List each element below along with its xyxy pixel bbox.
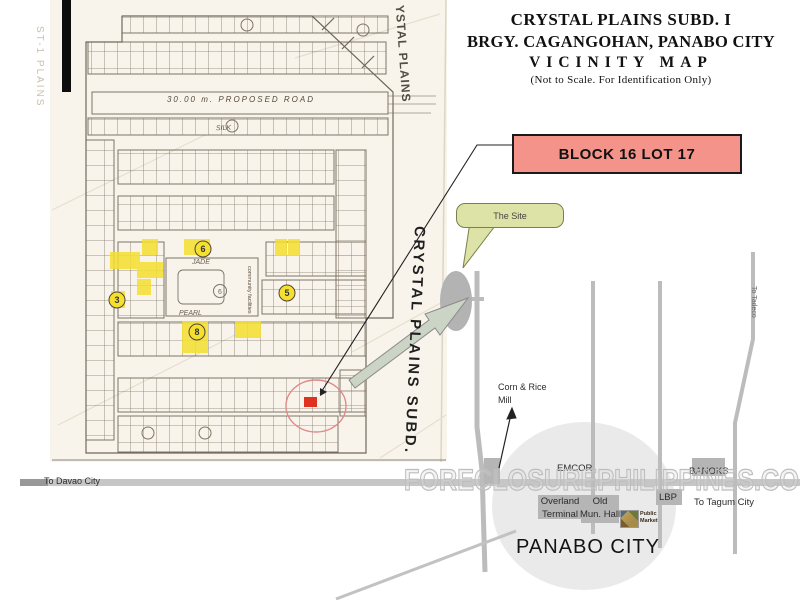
street-name-jade: JADE	[192, 259, 210, 266]
block-lot-callout: BLOCK 16 LOT 17	[512, 134, 742, 174]
street-name-silk: SILK	[216, 125, 231, 133]
street-name-pearl: PEARL	[179, 310, 202, 317]
block-number-circle: 8	[194, 327, 199, 337]
to-tagum-city-label: To Tagum City	[694, 497, 754, 508]
public-market-label: Public Market	[640, 511, 658, 525]
public-market-line1: Public	[640, 511, 658, 518]
scan-edge-bar	[62, 0, 71, 92]
to-tadeco-label: To Tadeco	[750, 286, 757, 318]
faint-edge-text: ST-1 PLAINS	[34, 26, 45, 107]
old-mun-hall-label: Old Mun. Hall	[578, 496, 622, 522]
vicinity-map-page: 6 3 6	[0, 0, 800, 600]
old-hall-line2: Mun. Hall	[578, 509, 622, 522]
banoks-label: BANOKS	[689, 466, 729, 477]
title-line3: VICINITY MAP	[445, 54, 797, 72]
lbp-label: LBP	[659, 492, 677, 503]
amenities-block: 6	[166, 258, 258, 316]
panabo-city-label: PANABO CITY	[516, 536, 660, 559]
map-title: CRYSTAL PLAINS SUBD. I BRGY. CAGANGOHAN,…	[445, 10, 797, 86]
corn-rice-mill-label: Corn & Rice Mill	[498, 381, 558, 407]
building-junction	[484, 458, 500, 484]
title-line1: CRYSTAL PLAINS SUBD. I	[445, 10, 797, 30]
to-davao-city-label: To Davao City	[44, 476, 100, 486]
public-market-icon	[620, 510, 639, 528]
title-line2: BRGY. CAGANGOHAN, PANABO CITY	[445, 32, 797, 52]
block-number-circle: 6	[200, 244, 205, 254]
block-number-circle: 3	[114, 295, 119, 305]
old-hall-line1: Old	[578, 496, 622, 509]
center-block-number: 6	[218, 289, 222, 296]
emcor-label: EMCOR	[557, 463, 592, 474]
public-market-line2: Market	[640, 518, 658, 525]
site-callout-bubble: The Site	[456, 203, 564, 228]
title-line4: (Not to Scale. For Identification Only)	[445, 74, 797, 86]
corn-rice-mill-line2: Mill	[498, 394, 558, 407]
corn-rice-mill-line1: Corn & Rice	[498, 381, 558, 394]
site-bubble-tail	[463, 222, 498, 268]
block-number-circle: 5	[284, 288, 289, 298]
proposed-road-label: 30.00 m. PROPOSED ROAD	[96, 95, 386, 104]
community-facilities-label: community facilities	[246, 266, 252, 314]
